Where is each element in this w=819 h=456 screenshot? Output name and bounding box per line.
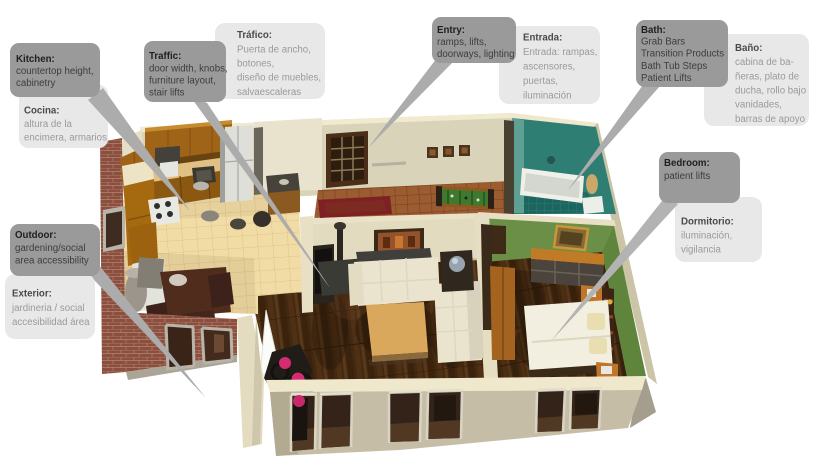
- svg-text:salvaescaleras: salvaescaleras: [237, 87, 301, 98]
- svg-text:Bath Tub Steps: Bath Tub Steps: [641, 61, 707, 72]
- svg-text:Cocina:: Cocina:: [24, 106, 60, 117]
- svg-text:Bath:: Bath:: [641, 25, 666, 36]
- svg-text:Bedroom:: Bedroom:: [664, 158, 710, 169]
- svg-text:Baño:: Baño:: [735, 43, 762, 54]
- svg-text:Transition Products: Transition Products: [641, 49, 724, 60]
- svg-text:patient lifts: patient lifts: [664, 171, 710, 182]
- svg-text:Entrada:: Entrada:: [523, 33, 562, 44]
- svg-text:furniture layout,: furniture layout,: [149, 76, 216, 87]
- svg-text:Grab Bars: Grab Bars: [641, 37, 685, 48]
- svg-text:vigilancia: vigilancia: [681, 245, 721, 256]
- svg-text:ascensores,: ascensores,: [523, 62, 575, 73]
- svg-text:botones,: botones,: [237, 59, 274, 70]
- svg-text:Entry:: Entry:: [437, 25, 465, 36]
- svg-text:door width, knobs,: door width, knobs,: [149, 63, 228, 74]
- svg-text:Entrada: rampas,: Entrada: rampas,: [523, 47, 597, 58]
- svg-text:cabinetry: cabinetry: [16, 78, 55, 89]
- svg-text:Patient Lifts: Patient Lifts: [641, 73, 692, 84]
- svg-text:Outdoor:: Outdoor:: [15, 230, 56, 241]
- svg-text:accesibilidad área: accesibilidad área: [12, 317, 90, 328]
- svg-text:gardening/social: gardening/social: [15, 243, 86, 254]
- svg-text:Puerta de ancho,: Puerta de ancho,: [237, 44, 311, 55]
- svg-text:vanidades,: vanidades,: [735, 100, 782, 111]
- svg-text:barras de apoyo: barras de apoyo: [735, 114, 805, 125]
- svg-text:ñeras, plato de: ñeras, plato de: [735, 71, 799, 82]
- svg-text:ramps, lifts,: ramps, lifts,: [437, 37, 487, 48]
- svg-text:ducha, rollo bajo: ducha, rollo bajo: [735, 86, 806, 97]
- svg-text:stair lifts: stair lifts: [149, 88, 185, 99]
- svg-text:puertas,: puertas,: [523, 76, 558, 87]
- svg-text:iluminación: iluminación: [523, 91, 571, 102]
- svg-text:Exterior:: Exterior:: [12, 289, 52, 300]
- svg-text:Kitchen:: Kitchen:: [16, 54, 55, 65]
- svg-text:area accessibility: area accessibility: [15, 256, 89, 267]
- svg-text:altura de la: altura de la: [24, 119, 73, 130]
- svg-text:Dormitorio:: Dormitorio:: [681, 217, 734, 228]
- svg-text:diseño de muebles,: diseño de muebles,: [237, 73, 321, 84]
- svg-text:doorways, lighting: doorways, lighting: [437, 49, 515, 60]
- svg-text:cabina de ba-: cabina de ba-: [735, 57, 794, 68]
- svg-text:Traffic:: Traffic:: [149, 51, 181, 62]
- svg-text:iluminación,: iluminación,: [681, 231, 732, 242]
- svg-text:Tráfico:: Tráfico:: [237, 30, 272, 41]
- svg-text:countertop height,: countertop height,: [16, 66, 94, 77]
- svg-text:jardineria / social: jardineria / social: [11, 303, 85, 314]
- svg-text:encimera, armarios: encimera, armarios: [24, 132, 107, 143]
